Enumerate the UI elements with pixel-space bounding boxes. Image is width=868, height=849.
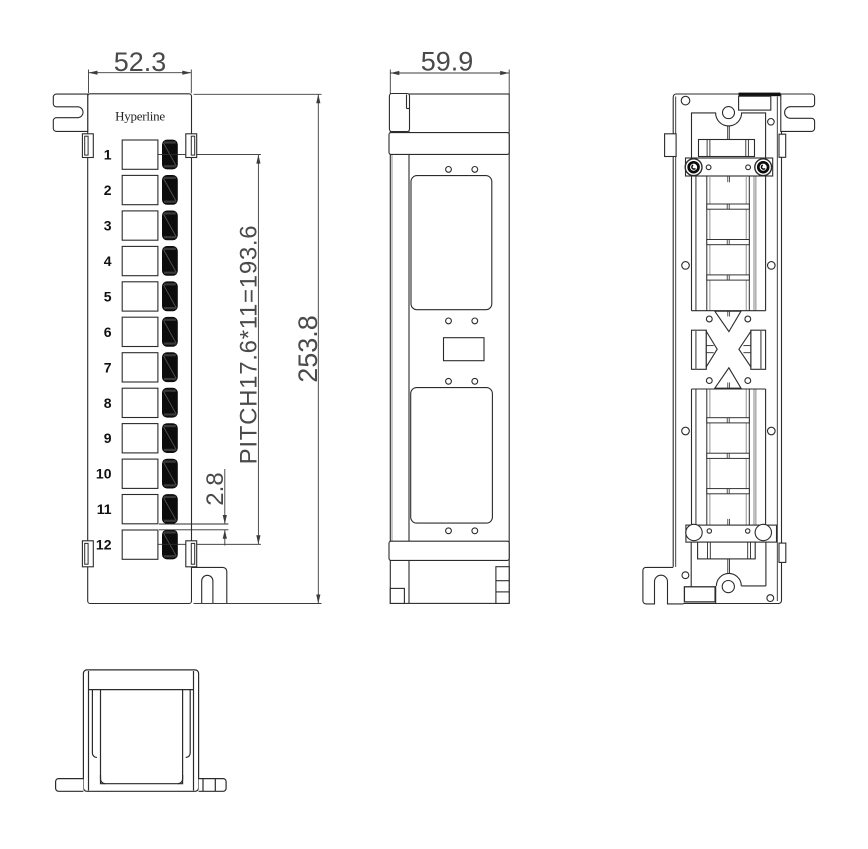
svg-text:7: 7 [104, 359, 112, 375]
svg-text:12: 12 [96, 537, 112, 553]
svg-text:5: 5 [104, 288, 112, 304]
svg-text:2.8: 2.8 [202, 472, 229, 505]
svg-text:11: 11 [97, 501, 112, 517]
svg-text:9: 9 [104, 430, 112, 446]
svg-text:59.9: 59.9 [421, 47, 474, 77]
svg-text:4: 4 [104, 253, 112, 269]
svg-text:2: 2 [104, 182, 112, 198]
svg-text:Hyperline: Hyperline [115, 109, 165, 124]
svg-text:1: 1 [104, 147, 112, 163]
svg-text:8: 8 [104, 395, 112, 411]
svg-text:6: 6 [104, 324, 112, 340]
svg-text:3: 3 [104, 218, 112, 234]
svg-text:52.3: 52.3 [114, 47, 167, 77]
svg-text:253.8: 253.8 [293, 315, 323, 383]
svg-text:10: 10 [96, 466, 112, 482]
svg-text:PITCH17.6*11=193.6: PITCH17.6*11=193.6 [236, 225, 263, 465]
